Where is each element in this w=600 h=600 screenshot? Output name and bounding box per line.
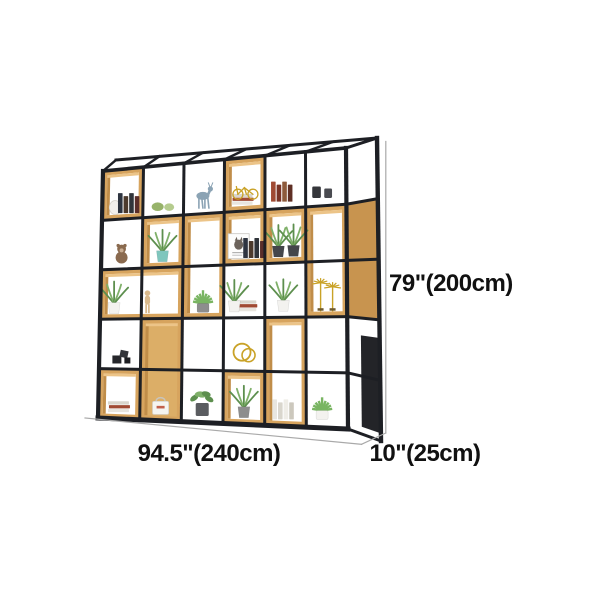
shelf-render [0,0,600,600]
side-panel [346,138,381,441]
booksFlat-icon [108,401,130,412]
product-dimension-image: 79"(200cm) 94.5"(240cm) 10"(25cm) [0,0,600,600]
wood-box [265,207,306,264]
depth-dimension-label: 10"(25cm) [370,442,481,466]
height-dimension-label: 79"(200cm) [389,272,513,296]
bear-icon [116,244,128,264]
width-dimension-label: 94.5"(240cm) [138,442,281,466]
